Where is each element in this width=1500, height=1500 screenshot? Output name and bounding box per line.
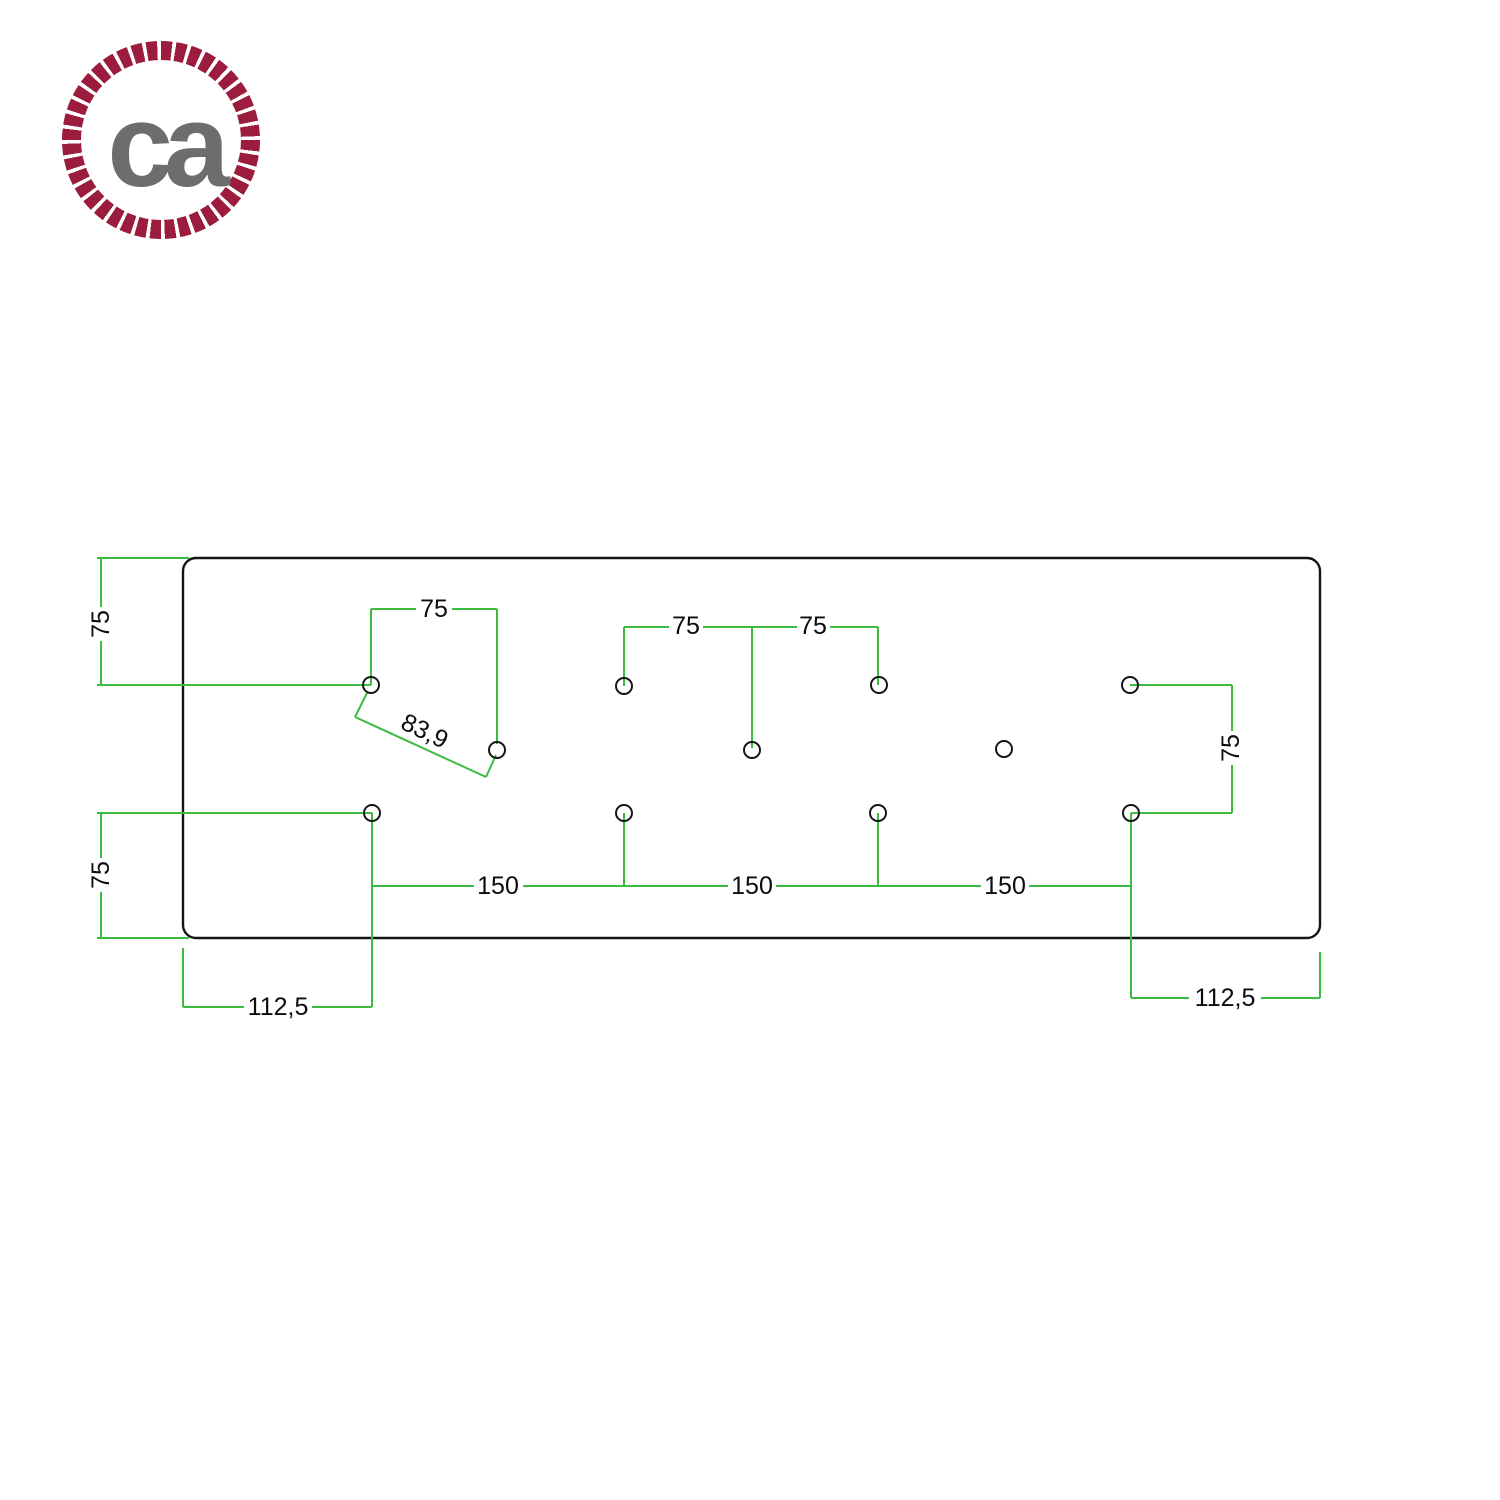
dimension-label: 75: [420, 595, 448, 623]
dimension-label: 150: [984, 872, 1026, 900]
dimension-label: 75: [1217, 734, 1245, 762]
dimension-label: 75: [87, 861, 115, 889]
dimension-label: 112,5: [1195, 984, 1256, 1012]
dimension-label: 75: [87, 610, 115, 638]
technical-drawing: 75 75 75 75 75 83,9 75 150 150 150 112,5…: [0, 0, 1500, 1500]
page: ca: [0, 0, 1500, 1500]
dimension-label: 112,5: [248, 993, 309, 1021]
dimension-label: 150: [477, 872, 519, 900]
dimension-label: 75: [672, 612, 700, 640]
dimension-label: 75: [799, 612, 827, 640]
dimension-label: 150: [731, 872, 773, 900]
